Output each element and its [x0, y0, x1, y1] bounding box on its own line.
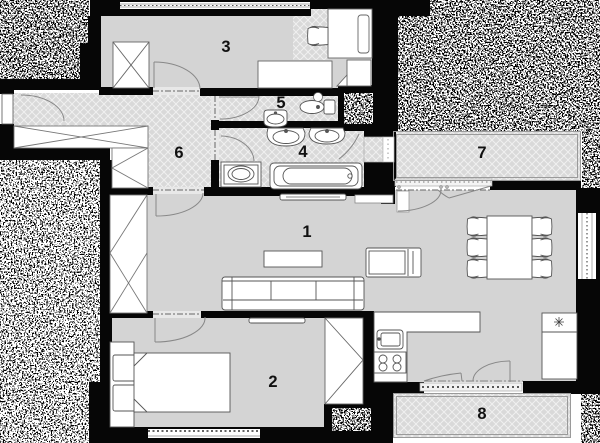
- svg-text:5: 5: [276, 94, 285, 112]
- svg-text:7: 7: [477, 144, 486, 162]
- svg-text:1: 1: [302, 223, 311, 241]
- svg-text:2: 2: [268, 373, 277, 391]
- svg-text:8: 8: [477, 405, 486, 423]
- svg-text:3: 3: [221, 38, 230, 56]
- svg-text:4: 4: [298, 143, 308, 161]
- svg-text:6: 6: [174, 144, 183, 162]
